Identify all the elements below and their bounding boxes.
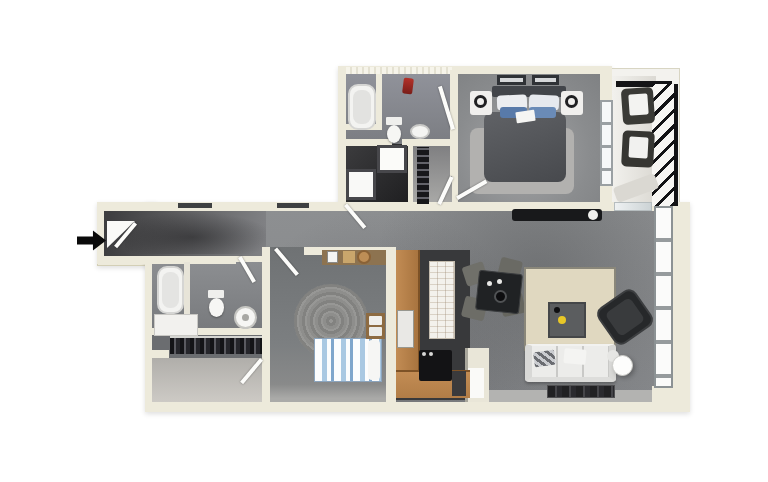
wall-tile-strip [346,67,452,74]
bathtub-1-basin [353,90,371,124]
washer [377,145,407,173]
wall-upper-left [338,66,346,206]
lamp-swirl-right [565,95,578,108]
dining-plate-b [497,279,502,284]
window-bedroom1 [600,100,613,186]
picture-frame-1 [497,75,526,85]
sink-1 [410,124,430,139]
patio-chair-1-seat [628,93,648,115]
patio-door [614,202,652,211]
picture-frame-2 [532,75,559,85]
kitchen-island [429,261,455,339]
patio-chair-2-seat [628,137,648,159]
wall-bath1-right-a [450,70,458,146]
desk-pad-white [327,251,338,263]
floor-walkin-closet-1 [408,144,452,206]
doorway-kitchen-stub [468,368,484,398]
desk-plate [357,250,371,264]
toilet-1-tank [386,117,402,125]
floor-plan [0,0,768,482]
floor-hallway-shadow [125,212,275,254]
wall-closet1-divider [408,146,413,206]
stove-knob-a [422,352,426,356]
floor-lamp [612,355,633,376]
clothes-rack-2 [170,336,262,354]
vanity-counter-2 [154,314,198,336]
lamp-swirl-left [474,95,487,108]
wall-tub2-side [184,262,190,316]
toilet-2-tank [208,290,224,298]
wall-tub1-side [376,74,382,130]
window-living [654,206,673,388]
wall-bath1-bottom-b [402,139,452,146]
wall-bedroom2-kitchen [386,247,396,404]
kitchen-sink-cabinet [397,310,414,348]
sink-2-drain [242,314,249,321]
bed1-duvet [484,112,566,182]
toilet-2-bowl [209,298,224,317]
window-slot-hall-2 [277,203,309,208]
dryer [346,169,376,200]
wall-left-block [145,256,152,412]
av-mat [547,385,615,398]
sofa-pillow-dark [533,350,556,368]
dining-plate-a [487,281,492,286]
wall-closet2-stub [145,350,169,358]
coffee-table-item-yellow [558,316,566,324]
wall-right-outer [672,202,690,412]
toilet-1-bowl [387,125,401,143]
tv-console-disc [588,210,598,220]
nightstand-2-drawer-b [369,327,382,336]
sofa-pillow-white [563,348,586,365]
dining-bowl [494,290,507,303]
stove-knob-b [429,352,433,356]
bathtub-2-basin [162,272,179,308]
wall-bottom [145,402,690,412]
coffee-table-item-dark [554,307,560,313]
wall-bath1-right-b [450,146,458,176]
wall-bedroom2-left [262,247,270,404]
counter-appliance [452,371,466,396]
red-towel [402,77,414,94]
wall-bath2-top [152,256,236,264]
clothes-rack-1 [417,147,429,204]
desk-pad-tan [343,251,355,263]
bed-2-pillow [368,340,380,380]
wall-under-window [652,386,674,404]
wall-entry-left [97,202,104,264]
window-slot-hall-1 [178,203,212,208]
nightstand-2-drawer-a [369,316,382,325]
